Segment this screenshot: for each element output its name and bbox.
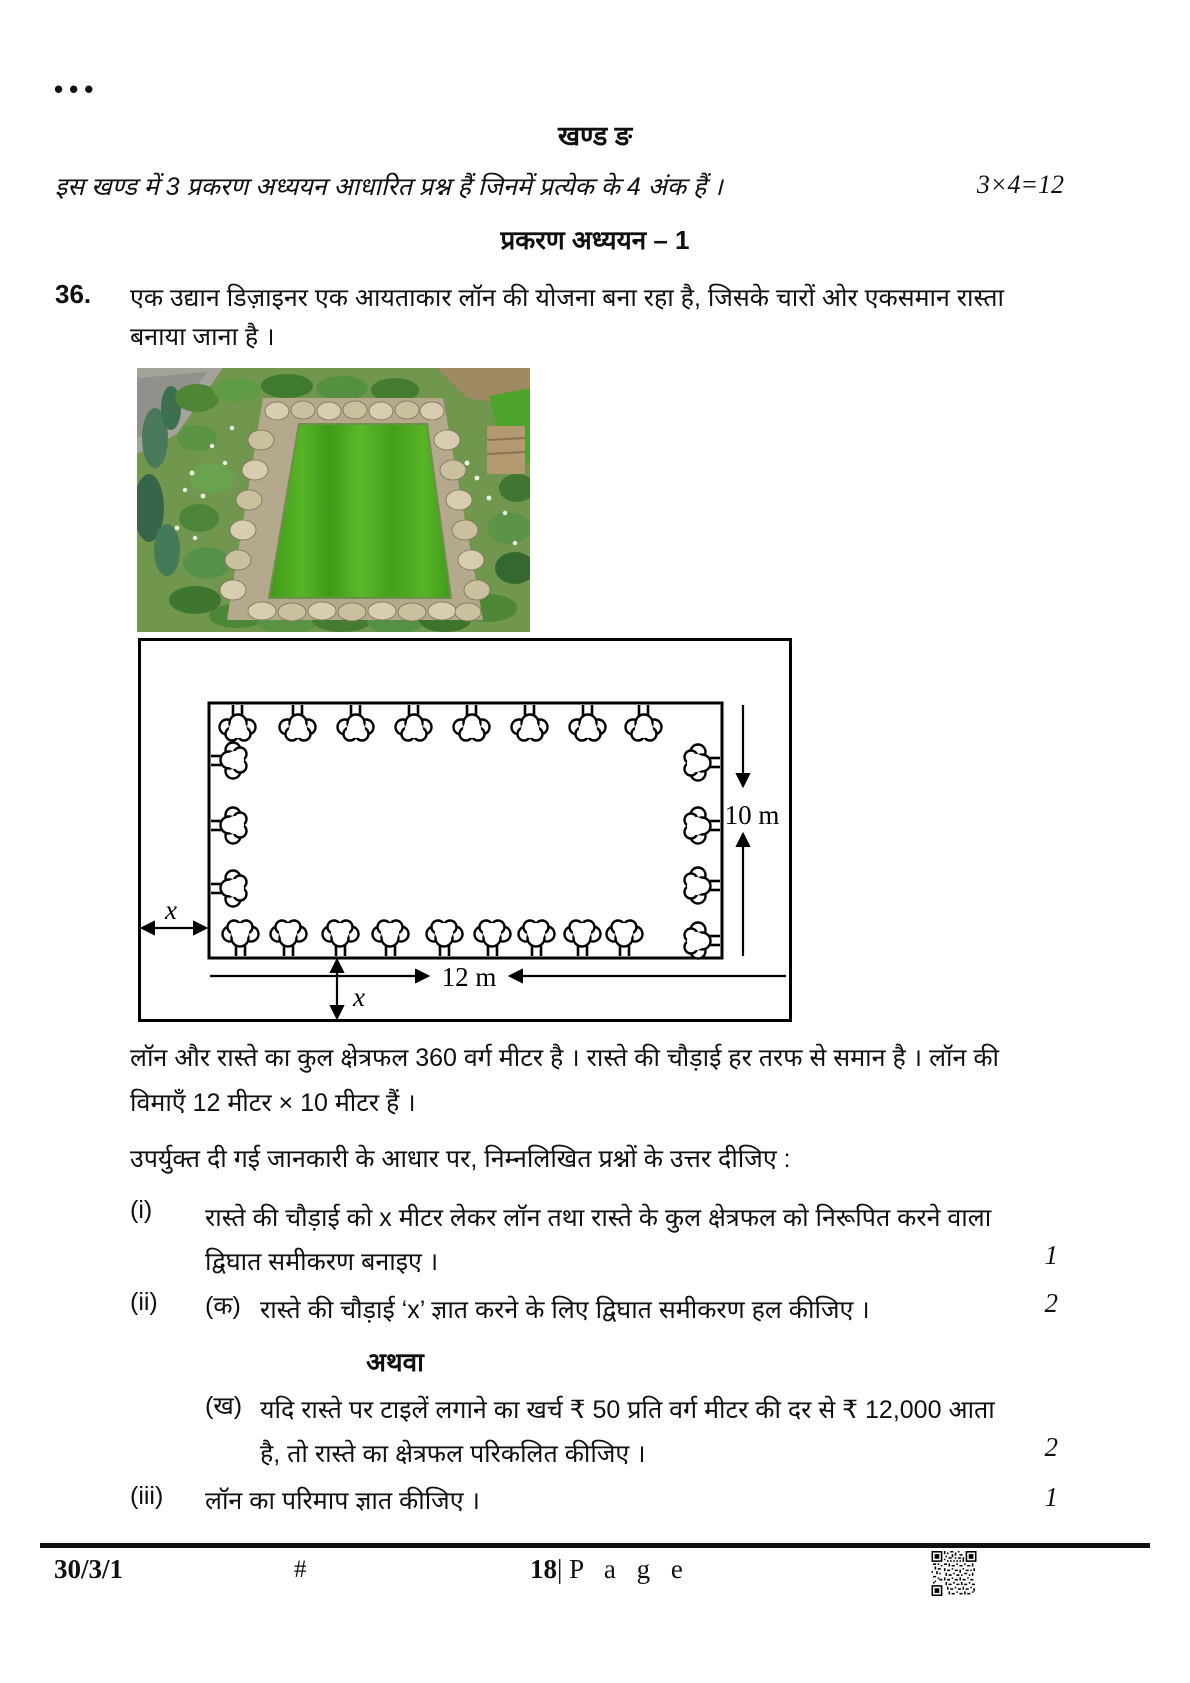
question-facts: लॉन और रास्ते का कुल क्षेत्रफल 360 वर्ग … bbox=[130, 1036, 1058, 1125]
part-iii-text: लॉन का परिमाप ज्ञात कीजिए । bbox=[205, 1482, 965, 1521]
part-ii-a-marks: 2 bbox=[998, 1288, 1058, 1319]
qr-code bbox=[930, 1551, 978, 1596]
part-i-marks: 1 bbox=[998, 1240, 1058, 1271]
case-study-title: प्रकरण अध्ययन – 1 bbox=[0, 221, 1190, 257]
part-ii-a-label: (क) bbox=[205, 1288, 241, 1322]
section-instruction: इस खण्ड में 3 प्रकरण अध्ययन आधारित प्रश्… bbox=[55, 168, 955, 207]
footer-page-word: P a g e bbox=[569, 1554, 690, 1584]
lawn-width-label: 12 m bbox=[442, 962, 497, 992]
part-ii-b-text: यदि रास्ते पर टाइलें लगाने का खर्च ₹ 50 … bbox=[260, 1388, 1012, 1476]
lawn-diagram: x 10 m 12 m x bbox=[138, 638, 792, 1022]
question-prompt: उपर्युक्त दी गई जानकारी के आधार पर, निम्… bbox=[130, 1140, 1058, 1179]
footer-page-indicator: 18| P a g e bbox=[530, 1554, 690, 1585]
footer-page-separator: | bbox=[557, 1554, 562, 1584]
lawn-height-label: 10 m bbox=[725, 800, 780, 830]
part-iii-marks: 1 bbox=[998, 1482, 1058, 1513]
footer-page-number: 18 bbox=[530, 1554, 557, 1584]
footer-paper-code: 30/3/1 bbox=[54, 1554, 123, 1585]
question-number: 36. bbox=[55, 279, 91, 310]
part-ii-b-label: (ख) bbox=[205, 1388, 242, 1422]
qr-code-svg bbox=[930, 1551, 978, 1596]
or-label: अथवा bbox=[330, 1343, 460, 1379]
footer-hash: # bbox=[294, 1556, 307, 1584]
page-corner-dots: ••• bbox=[54, 74, 99, 105]
lawn-diagram-svg: x 10 m 12 m x bbox=[138, 638, 792, 1022]
part-i-text: रास्ते की चौड़ाई को x मीटर लेकर लॉन तथा … bbox=[205, 1196, 1017, 1284]
garden-photo bbox=[137, 368, 530, 632]
section-marks-scheme: 3×4=12 bbox=[944, 170, 1064, 200]
section-title: खण्ड ङ bbox=[0, 116, 1190, 153]
garden-photo-svg bbox=[137, 368, 530, 632]
part-iii-label: (iii) bbox=[130, 1482, 163, 1511]
part-ii-label: (ii) bbox=[130, 1288, 158, 1317]
part-ii-b-marks: 2 bbox=[998, 1432, 1058, 1463]
exam-paper-page: ••• खण्ड ङ इस खण्ड में 3 प्रकरण अध्ययन आ… bbox=[0, 0, 1190, 1683]
path-width-label-bottom: x bbox=[352, 982, 365, 1012]
photo-lawn bbox=[269, 424, 451, 598]
footer-divider bbox=[40, 1543, 1150, 1548]
part-ii-a-text: रास्ते की चौड़ाई ‘x’ ज्ञात करने के लिए द… bbox=[260, 1288, 1020, 1332]
question-intro: एक उद्यान डिज़ाइनर एक आयताकार लॉन की योज… bbox=[130, 279, 1035, 357]
path-width-label-left: x bbox=[164, 895, 177, 925]
part-i-label: (i) bbox=[130, 1196, 152, 1225]
